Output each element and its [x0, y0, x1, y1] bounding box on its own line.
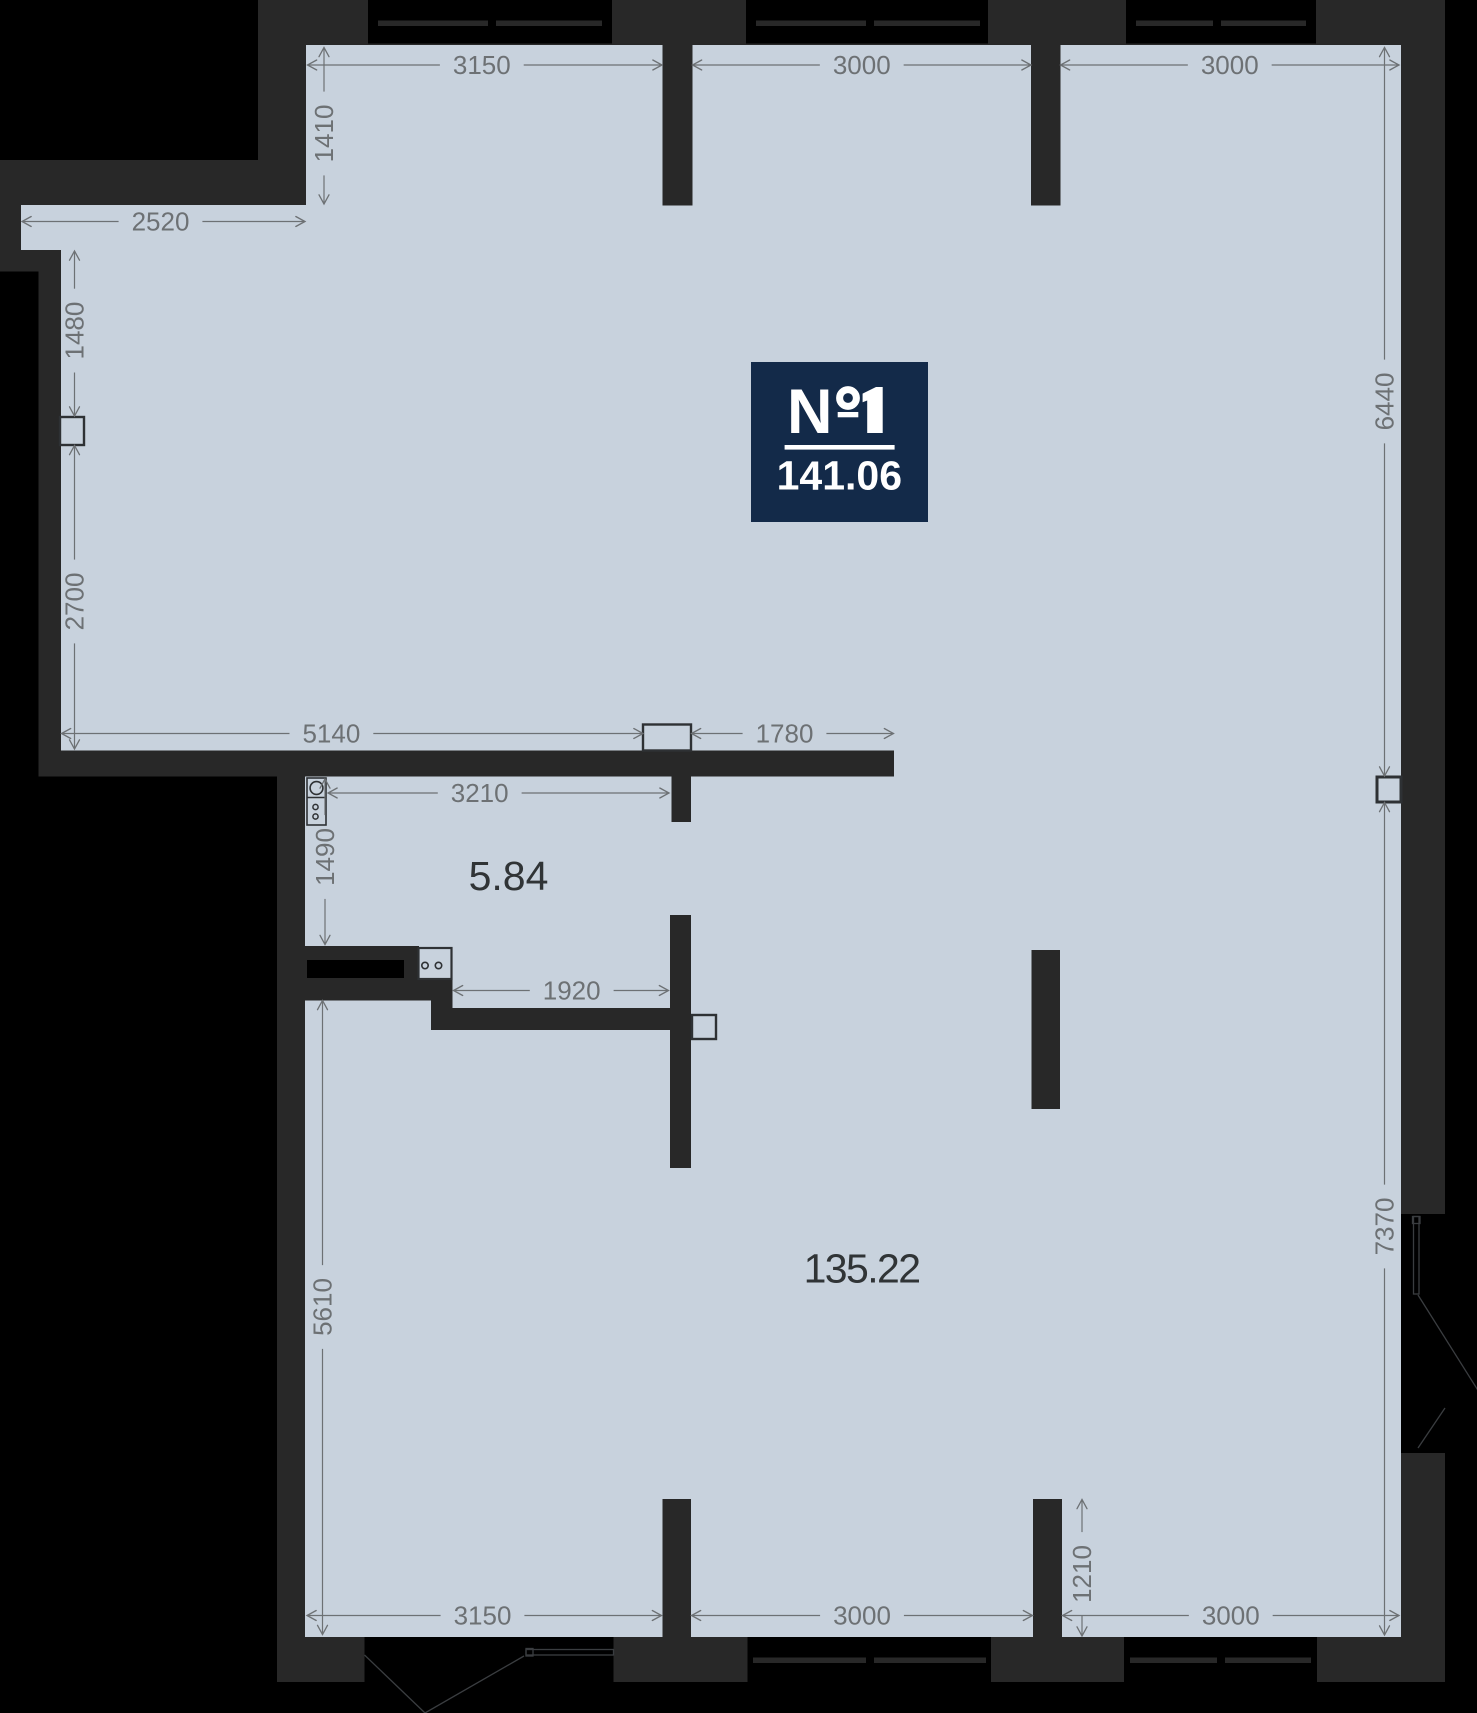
svg-text:3000: 3000: [833, 1601, 891, 1631]
svg-text:3210: 3210: [451, 778, 509, 808]
svg-text:5140: 5140: [302, 719, 360, 749]
svg-text:135.22: 135.22: [804, 1246, 920, 1292]
svg-text:7370: 7370: [1370, 1198, 1400, 1256]
svg-text:3000: 3000: [1202, 1601, 1260, 1631]
svg-text:5.84: 5.84: [469, 853, 549, 899]
svg-text:3150: 3150: [454, 1601, 512, 1631]
svg-text:1780: 1780: [756, 719, 814, 749]
svg-text:1490: 1490: [310, 828, 340, 886]
svg-text:1920: 1920: [543, 976, 601, 1006]
svg-text:3000: 3000: [833, 50, 891, 80]
svg-text:2700: 2700: [60, 573, 90, 631]
svg-text:6440: 6440: [1370, 373, 1400, 431]
svg-text:1480: 1480: [60, 302, 90, 360]
svg-text:141.06: 141.06: [777, 453, 902, 499]
svg-text:2520: 2520: [132, 207, 190, 237]
svg-text:1210: 1210: [1067, 1545, 1097, 1603]
svg-text:1410: 1410: [309, 105, 339, 163]
svg-text:N: N: [787, 377, 833, 447]
svg-text:3150: 3150: [453, 50, 511, 80]
svg-text:5610: 5610: [308, 1278, 338, 1336]
svg-text:3000: 3000: [1201, 50, 1259, 80]
